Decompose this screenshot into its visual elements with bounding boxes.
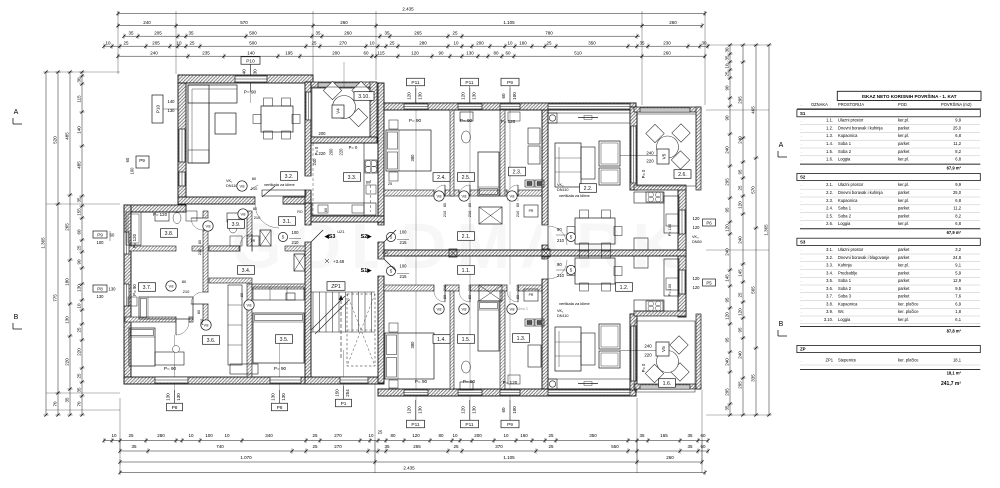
svg-text:parket: parket [898, 286, 910, 291]
svg-text:80: 80 [438, 433, 444, 438]
svg-text:V8: V8 [204, 323, 210, 328]
svg-text:.: . [801, 302, 802, 306]
svg-text:60: 60 [700, 433, 706, 438]
svg-text:80: 80 [390, 433, 396, 438]
svg-text:P= 100: P= 100 [668, 284, 672, 296]
svg-text:3.2.: 3.2. [826, 255, 833, 260]
svg-text:130: 130 [65, 316, 70, 324]
svg-text:V5: V5 [661, 346, 666, 352]
svg-text:130: 130 [109, 287, 117, 292]
svg-text:130: 130 [418, 92, 423, 100]
svg-text:10: 10 [725, 63, 730, 69]
svg-text:3.7.: 3.7. [826, 294, 833, 299]
svg-text:P8: P8 [172, 405, 178, 411]
svg-text:1.5.: 1.5. [826, 149, 833, 154]
svg-text:90: 90 [557, 262, 562, 267]
svg-text:A: A [14, 109, 19, 116]
svg-text:S2: S2 [800, 175, 806, 180]
svg-text:140: 140 [168, 99, 176, 104]
svg-text:.: . [801, 318, 802, 322]
svg-text:parket: parket [898, 270, 910, 275]
svg-text:95: 95 [738, 169, 743, 175]
svg-text:120: 120 [461, 92, 466, 100]
svg-text:130: 130 [472, 92, 477, 100]
svg-text:Ulazni prostor: Ulazni prostor [838, 247, 864, 252]
svg-text:210: 210 [197, 248, 202, 255]
svg-text:500: 500 [249, 41, 257, 46]
svg-text:240: 240 [150, 51, 158, 56]
svg-text:220: 220 [646, 159, 654, 164]
svg-text:OZNAKA: OZNAKA [811, 102, 828, 107]
svg-text:120: 120 [693, 276, 701, 281]
svg-text:280: 280 [419, 41, 427, 46]
svg-text:P1: P1 [341, 401, 347, 407]
svg-text:35: 35 [639, 41, 645, 46]
svg-text:P= 90: P= 90 [460, 118, 473, 123]
svg-text:RO: RO [382, 251, 388, 255]
svg-text:.: . [801, 248, 802, 252]
svg-text:240: 240 [725, 248, 730, 256]
svg-text:V8: V8 [462, 194, 468, 199]
svg-text:parket: parket [898, 125, 910, 130]
svg-text:ker.pl.: ker.pl. [898, 317, 909, 322]
svg-text:◀S3: ◀S3 [324, 234, 336, 240]
svg-text:ker.pl.: ker.pl. [898, 198, 909, 203]
svg-text:.: . [801, 287, 802, 291]
svg-text:10: 10 [111, 433, 117, 438]
svg-text:.: . [801, 126, 802, 130]
svg-text:3.2.: 3.2. [285, 174, 294, 180]
svg-text:95: 95 [738, 327, 743, 333]
svg-text:5,9: 5,9 [955, 270, 961, 275]
svg-text:240: 240 [738, 351, 743, 359]
svg-text:1.2.: 1.2. [826, 125, 833, 130]
svg-text:ker.pl.: ker.pl. [898, 263, 909, 268]
svg-text:130: 130 [168, 108, 176, 113]
svg-text:25: 25 [378, 430, 383, 435]
svg-text:25,0: 25,0 [953, 190, 962, 195]
svg-text:2.5.: 2.5. [826, 213, 833, 218]
svg-text:2.435: 2.435 [402, 7, 414, 12]
svg-text:260: 260 [340, 20, 348, 25]
svg-text:2.3.: 2.3. [513, 169, 522, 175]
svg-text:25: 25 [548, 444, 554, 449]
svg-text:.: . [801, 158, 802, 162]
svg-text:10: 10 [452, 433, 458, 438]
svg-text:10: 10 [224, 433, 230, 438]
svg-text:25: 25 [548, 433, 554, 438]
svg-text:B: B [14, 314, 19, 321]
svg-text:P11: P11 [465, 422, 474, 428]
svg-text:210: 210 [183, 289, 190, 294]
svg-text:120: 120 [461, 406, 466, 414]
svg-text:3.1.: 3.1. [826, 247, 833, 252]
svg-text:240: 240 [644, 344, 652, 349]
svg-text:RO: RO [297, 210, 303, 214]
svg-text:295: 295 [725, 178, 730, 186]
svg-text:PR: PR [251, 239, 256, 243]
svg-text:3.3.: 3.3. [826, 263, 833, 268]
svg-text:.: . [801, 134, 802, 138]
svg-text:V8: V8 [241, 212, 247, 217]
svg-text:P11: P11 [411, 80, 420, 86]
svg-text:P= 90: P= 90 [409, 118, 422, 123]
svg-text:150: 150 [335, 389, 340, 397]
svg-text:P= 0: P= 0 [641, 363, 646, 372]
svg-text:95: 95 [725, 297, 730, 303]
svg-text:35: 35 [384, 444, 390, 449]
svg-text:35: 35 [77, 387, 82, 393]
svg-text:1,8: 1,8 [955, 309, 961, 314]
svg-text:120: 120 [407, 406, 412, 414]
svg-text:3.9.: 3.9. [232, 222, 241, 228]
svg-text:215: 215 [400, 240, 408, 245]
svg-text:165: 165 [660, 433, 668, 438]
svg-text:ker. pločice: ker. pločice [898, 301, 919, 306]
svg-text:80: 80 [493, 51, 499, 56]
svg-text:260: 260 [344, 31, 352, 36]
svg-text:ker.pl.: ker.pl. [898, 221, 909, 226]
svg-text:P11: P11 [465, 80, 474, 86]
svg-text:240: 240 [312, 158, 317, 166]
svg-text:485: 485 [77, 161, 82, 169]
svg-text:.: . [801, 271, 802, 275]
svg-text:.: . [801, 191, 802, 195]
svg-text:2.5.: 2.5. [462, 175, 471, 181]
svg-text:P10: P10 [156, 104, 161, 113]
svg-text:60: 60 [501, 407, 506, 413]
svg-text:10: 10 [369, 41, 375, 46]
svg-text:500: 500 [249, 31, 257, 36]
svg-text:3.10.: 3.10. [824, 317, 833, 322]
svg-text:2.4.: 2.4. [826, 206, 833, 211]
svg-text:205: 205 [152, 41, 160, 46]
svg-text:30: 30 [725, 47, 730, 53]
svg-text:230: 230 [663, 41, 671, 46]
svg-text:S2▶: S2▶ [361, 234, 373, 240]
svg-text:120: 120 [412, 433, 420, 438]
svg-text:30: 30 [77, 77, 82, 83]
svg-text:25: 25 [725, 71, 730, 77]
svg-text:130: 130 [166, 393, 171, 401]
svg-text:1.070: 1.070 [240, 455, 252, 460]
svg-text:295: 295 [738, 381, 743, 389]
svg-text:25: 25 [311, 41, 317, 46]
svg-text:60: 60 [363, 51, 369, 56]
svg-text:6,8: 6,8 [955, 221, 961, 226]
svg-text:280: 280 [157, 433, 165, 438]
svg-text:260: 260 [666, 455, 674, 460]
svg-text:ker.pl.: ker.pl. [898, 133, 909, 138]
svg-text:67,9 m²: 67,9 m² [947, 230, 962, 235]
svg-text:Soba 2: Soba 2 [838, 213, 852, 218]
svg-text:350: 350 [588, 41, 596, 46]
svg-text:67,9 m²: 67,9 m² [947, 166, 962, 171]
svg-text:240: 240 [738, 236, 743, 244]
svg-text:3.10.: 3.10. [358, 94, 370, 100]
svg-text:parket: parket [898, 247, 910, 252]
svg-text:P= 0: P= 0 [314, 146, 319, 155]
svg-text:370: 370 [495, 444, 503, 449]
svg-text:200: 200 [332, 51, 340, 56]
svg-text:18,1: 18,1 [953, 357, 962, 362]
svg-text:3.5.: 3.5. [280, 337, 289, 343]
svg-text:Loggia: Loggia [838, 157, 851, 162]
svg-text:5: 5 [570, 235, 573, 240]
svg-text:.: . [801, 150, 802, 154]
svg-text:140: 140 [247, 51, 255, 56]
svg-text:265: 265 [413, 444, 421, 449]
svg-text:.: . [801, 214, 802, 218]
svg-text:Kupaonica: Kupaonica [838, 198, 858, 203]
svg-text:6,8: 6,8 [955, 198, 961, 203]
svg-text:P6: P6 [706, 220, 712, 225]
svg-text:DN110: DN110 [557, 314, 569, 318]
svg-text:270: 270 [334, 433, 342, 438]
svg-text:2.2.: 2.2. [826, 190, 833, 195]
svg-text:380: 380 [410, 341, 415, 349]
svg-text:120: 120 [411, 51, 419, 56]
svg-text:2.4.: 2.4. [437, 175, 446, 181]
svg-text:25: 25 [546, 41, 552, 46]
svg-text:295: 295 [738, 96, 743, 104]
svg-text:Loggia: Loggia [838, 317, 851, 322]
svg-text:2.1.: 2.1. [826, 182, 833, 187]
svg-text:UZ1: UZ1 [337, 230, 344, 234]
svg-text:parket: parket [898, 278, 910, 283]
svg-text:25: 25 [452, 31, 458, 36]
svg-text:100: 100 [205, 433, 213, 438]
svg-text:P11: P11 [411, 422, 420, 428]
svg-text:35: 35 [639, 433, 645, 438]
svg-text:260: 260 [669, 20, 677, 25]
svg-text:120: 120 [738, 201, 743, 209]
svg-text:155: 155 [77, 208, 82, 216]
svg-text:210: 210 [442, 210, 447, 217]
svg-text:3.4.: 3.4. [826, 270, 833, 275]
svg-text:9,9: 9,9 [955, 182, 961, 187]
svg-text:550: 550 [611, 444, 619, 449]
svg-text:120: 120 [738, 308, 743, 316]
svg-text:ZP1: ZP1 [331, 284, 341, 290]
svg-text:POVRŠINA (m2): POVRŠINA (m2) [941, 102, 972, 107]
svg-text:P8: P8 [277, 405, 283, 411]
svg-text:35: 35 [384, 31, 390, 36]
svg-text:POD: POD [898, 102, 907, 107]
svg-text:Ulazni prostor: Ulazni prostor [838, 182, 864, 187]
svg-text:240: 240 [738, 136, 743, 144]
svg-text:90: 90 [725, 115, 730, 121]
svg-text:70: 70 [77, 401, 82, 407]
svg-text:.: . [801, 207, 802, 211]
svg-text:6,8: 6,8 [955, 133, 961, 138]
svg-text:Ulazni prostor: Ulazni prostor [838, 118, 864, 123]
svg-text:240: 240 [646, 151, 654, 156]
svg-text:25: 25 [123, 41, 129, 46]
svg-text:1.6.: 1.6. [663, 381, 672, 387]
svg-text:35: 35 [725, 55, 730, 61]
svg-text:vertikala za klime: vertikala za klime [264, 182, 295, 187]
svg-text:6,1: 6,1 [955, 317, 961, 322]
svg-text:Soba 1: Soba 1 [838, 278, 852, 283]
svg-text:35: 35 [128, 31, 134, 36]
svg-text:95: 95 [725, 337, 730, 343]
svg-text:265: 265 [65, 223, 70, 231]
svg-text:ker.pl.: ker.pl. [898, 118, 909, 123]
svg-text:210: 210 [254, 215, 261, 220]
svg-text:254: 254 [345, 389, 350, 397]
svg-text:S1: S1 [800, 111, 806, 116]
svg-text:ker.pl.: ker.pl. [898, 157, 909, 162]
svg-text:ker. pločice: ker. pločice [898, 309, 919, 314]
svg-text:Dnevni boravak i kuhinja: Dnevni boravak i kuhinja [838, 190, 883, 195]
svg-text:Dnevni boravak i kuhinja: Dnevni boravak i kuhinja [838, 125, 883, 130]
svg-text:DN110: DN110 [226, 184, 238, 188]
svg-text:570: 570 [240, 20, 248, 25]
svg-text:2.3.: 2.3. [826, 198, 833, 203]
svg-text:Soba 3: Soba 3 [838, 294, 852, 299]
svg-text:24,8: 24,8 [953, 255, 962, 260]
svg-text:130: 130 [176, 393, 181, 401]
svg-text:P= 120: P= 120 [501, 119, 516, 124]
svg-text:210: 210 [251, 186, 258, 191]
svg-text:35: 35 [315, 31, 321, 36]
svg-text:1.1.: 1.1. [462, 268, 471, 274]
svg-text:Klima 3: Klima 3 [516, 307, 527, 311]
svg-text:V8: V8 [240, 184, 246, 189]
svg-text:130: 130 [77, 284, 82, 292]
svg-text:3.6.: 3.6. [826, 286, 833, 291]
svg-text:VK₁: VK₁ [226, 179, 233, 183]
svg-text:8,2: 8,2 [955, 213, 961, 218]
svg-text:.: . [801, 142, 802, 146]
svg-text:775: 775 [53, 294, 58, 302]
svg-text:11,2: 11,2 [953, 206, 961, 211]
svg-text:1.5.: 1.5. [462, 337, 471, 343]
svg-text:18,1 m²: 18,1 m² [947, 371, 962, 376]
svg-text:P9: P9 [97, 232, 103, 237]
svg-text:P= 90: P= 90 [244, 90, 257, 95]
svg-text:P= 90: P= 90 [415, 379, 428, 384]
svg-text:10: 10 [368, 433, 374, 438]
svg-text:10: 10 [105, 41, 111, 46]
svg-text:ISKAZ NETO KORISNIH POVRŠINA -: ISKAZ NETO KORISNIH POVRŠINA - 1. KAT [862, 92, 957, 99]
svg-text:.: . [801, 279, 802, 283]
svg-text:PR: PR [529, 209, 534, 213]
svg-text:6,8: 6,8 [955, 157, 961, 162]
svg-text:P= 100: P= 100 [668, 224, 672, 236]
svg-text:parket: parket [898, 294, 910, 299]
svg-text:3.1.: 3.1. [283, 219, 292, 225]
svg-text:parket: parket [898, 141, 910, 146]
svg-text:5: 5 [390, 269, 393, 274]
svg-text:3.3.: 3.3. [348, 175, 357, 181]
svg-text:60: 60 [125, 157, 130, 162]
svg-text:Wc: Wc [838, 309, 844, 314]
svg-text:95: 95 [725, 207, 730, 213]
svg-text:100: 100 [292, 230, 300, 235]
svg-text:115: 115 [377, 51, 385, 56]
svg-text:145: 145 [725, 274, 730, 282]
svg-text:. .: . . [800, 103, 803, 107]
svg-text:parket: parket [898, 255, 910, 260]
svg-text:P= 0: P= 0 [641, 169, 646, 178]
svg-text:2.6.: 2.6. [826, 221, 833, 226]
svg-text:60: 60 [700, 444, 706, 449]
svg-text:10: 10 [176, 41, 182, 46]
svg-text:ker. pločice: ker. pločice [898, 357, 919, 362]
svg-text:P= 120: P= 120 [503, 380, 518, 385]
svg-text:200: 200 [329, 148, 334, 156]
svg-text:.: . [801, 183, 802, 187]
svg-text:25: 25 [312, 433, 318, 438]
svg-text:380: 380 [410, 154, 415, 162]
svg-text:parket: parket [898, 213, 910, 218]
svg-text:90: 90 [438, 51, 444, 56]
svg-text:10: 10 [77, 303, 82, 309]
svg-text:Stepenice: Stepenice [838, 357, 857, 362]
svg-text:P8: P8 [97, 286, 103, 291]
svg-text:10: 10 [507, 41, 513, 46]
svg-text:1.3.: 1.3. [826, 133, 833, 138]
svg-text:130: 130 [472, 406, 477, 414]
svg-text:Soba 2: Soba 2 [838, 149, 852, 154]
svg-text:3.8.: 3.8. [165, 231, 174, 237]
svg-text:220: 220 [65, 358, 70, 366]
svg-text:Predsoblje: Predsoblje [838, 270, 858, 275]
svg-text:2.6.: 2.6. [678, 172, 687, 178]
svg-text:P= 90: P= 90 [274, 366, 287, 371]
svg-text:60: 60 [77, 229, 82, 235]
svg-text:P= 90: P= 90 [463, 379, 476, 384]
svg-text:Kuhinja: Kuhinja [838, 263, 852, 268]
svg-text:35: 35 [77, 197, 82, 203]
svg-text:100: 100 [512, 406, 517, 414]
svg-text:V8: V8 [510, 194, 516, 199]
svg-text:25: 25 [77, 327, 82, 333]
svg-text:35: 35 [687, 433, 693, 438]
svg-text:Kupaonica: Kupaonica [838, 301, 858, 306]
svg-text:210: 210 [442, 284, 447, 291]
svg-text:160: 160 [519, 41, 527, 46]
svg-text:8,2: 8,2 [955, 149, 961, 154]
svg-text:25: 25 [389, 41, 395, 46]
svg-text:1.4.: 1.4. [437, 337, 446, 343]
svg-text:.: . [801, 264, 802, 268]
svg-text:520: 520 [53, 136, 58, 144]
svg-text:P= 0: P= 0 [349, 145, 358, 150]
svg-text:120: 120 [407, 92, 412, 100]
svg-text:510: 510 [574, 51, 582, 56]
svg-text:240: 240 [143, 20, 151, 25]
svg-text:35: 35 [687, 444, 693, 449]
svg-text:130: 130 [281, 393, 286, 401]
svg-text:215: 215 [400, 274, 408, 279]
svg-text:60: 60 [110, 233, 115, 238]
svg-text:.: . [801, 222, 802, 226]
svg-text:260: 260 [663, 51, 671, 56]
svg-text:335: 335 [751, 374, 756, 382]
svg-text:220: 220 [77, 348, 82, 356]
svg-text:1.6.: 1.6. [826, 157, 833, 162]
svg-text:25: 25 [453, 444, 459, 449]
svg-text:120: 120 [693, 216, 701, 221]
svg-text:10: 10 [503, 433, 509, 438]
svg-text:350: 350 [589, 433, 597, 438]
svg-text:vertikala za klime: vertikala za klime [559, 193, 590, 198]
svg-text:210: 210 [467, 210, 472, 217]
svg-text:3.7.: 3.7. [143, 285, 152, 291]
